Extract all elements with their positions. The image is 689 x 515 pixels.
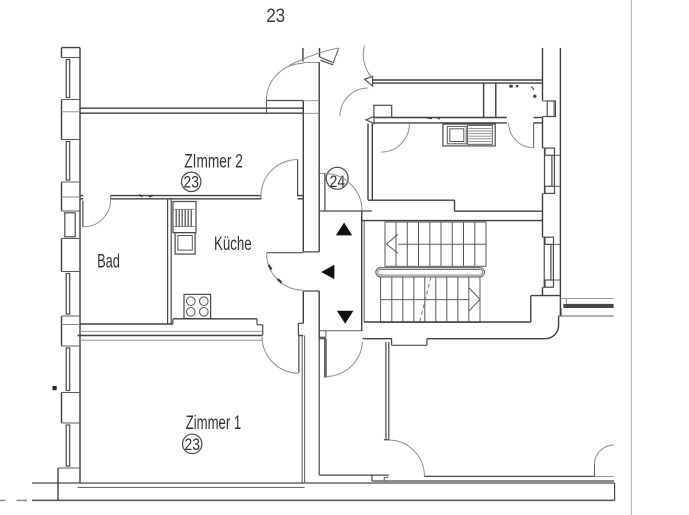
svg-text:23: 23 bbox=[185, 435, 200, 454]
svg-text:ZImmer 2: ZImmer 2 bbox=[184, 152, 243, 173]
svg-text:23: 23 bbox=[266, 5, 285, 27]
svg-text:23: 23 bbox=[184, 173, 199, 192]
svg-text:Küche: Küche bbox=[214, 234, 252, 255]
svg-text:24: 24 bbox=[330, 172, 346, 191]
svg-text:Bad: Bad bbox=[97, 251, 120, 272]
svg-text:Zimmer 1: Zimmer 1 bbox=[186, 413, 242, 434]
